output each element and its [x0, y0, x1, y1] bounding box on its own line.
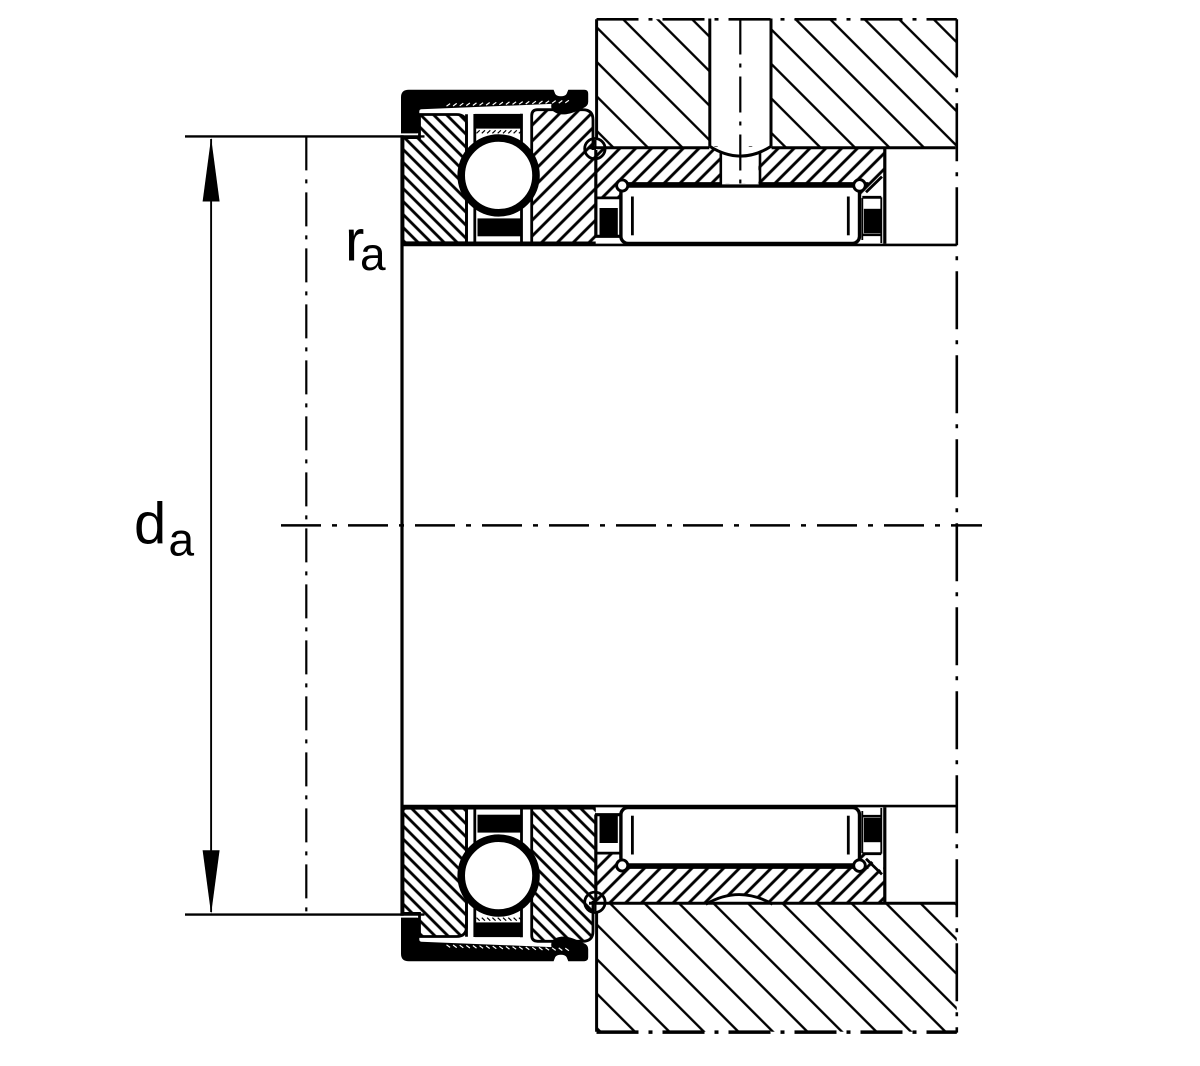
svg-text:a: a: [169, 514, 195, 566]
svg-text:d: d: [134, 492, 166, 557]
svg-text:a: a: [360, 228, 386, 280]
